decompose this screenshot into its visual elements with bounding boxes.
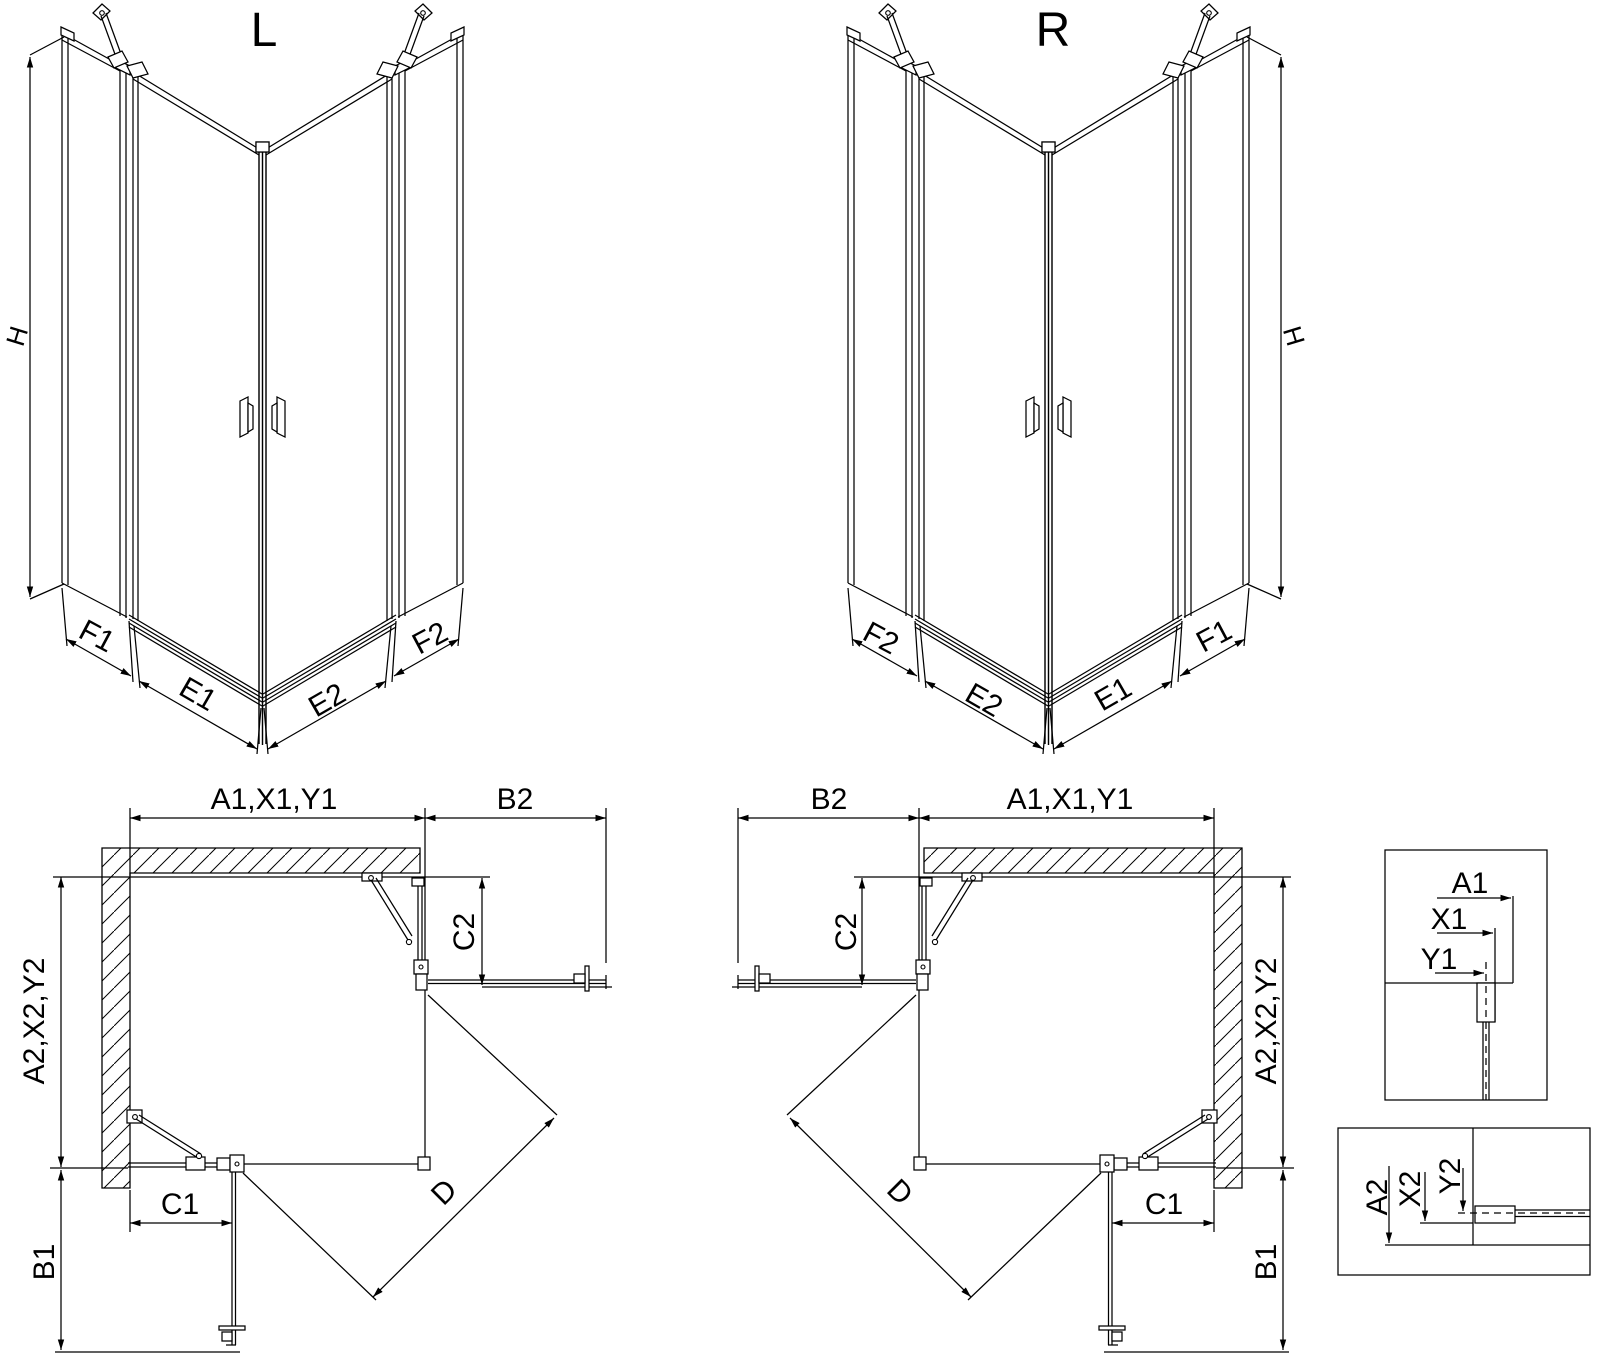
dim-label-a1-detail: A1 bbox=[1452, 867, 1489, 900]
dim-label-d-left-plan: D bbox=[425, 1173, 464, 1212]
iso-view-right: R H F2 E2 E1 F1 bbox=[847, 4, 1311, 754]
dim-label-a2-detail: A2 bbox=[1361, 1179, 1394, 1216]
dim-label-x2-detail: X2 bbox=[1394, 1171, 1427, 1208]
dim-label-c1-right-plan: C1 bbox=[1145, 1188, 1183, 1221]
dim-label-a2x2y2-right-plan: A2,X2,Y2 bbox=[1250, 958, 1283, 1085]
dim-label-c2-right-plan: C2 bbox=[830, 913, 863, 951]
dim-label-d-right-plan: D bbox=[880, 1173, 919, 1212]
dim-label-b1-left-plan: B1 bbox=[28, 1244, 61, 1281]
dim-label-c1-left-plan: C1 bbox=[161, 1188, 199, 1221]
dim-label-y1-detail: Y1 bbox=[1421, 943, 1458, 976]
dim-label-x1-detail: X1 bbox=[1431, 903, 1468, 936]
dim-label-e2-left-iso: E2 bbox=[303, 677, 351, 724]
dim-label-e2-right-iso: E2 bbox=[960, 677, 1008, 724]
dim-label-b2-right-plan: B2 bbox=[811, 783, 848, 816]
wall-hatched-right-plan bbox=[924, 848, 1242, 1188]
dim-label-h-left-iso: H bbox=[0, 323, 34, 350]
technical-drawing-canvas: L H F1 E1 E2 F2 R H F2 E2 E1 F1 A1,X1,Y1… bbox=[0, 0, 1600, 1359]
dim-label-a1x1y1-right-plan: A1,X1,Y1 bbox=[1007, 783, 1134, 816]
dim-label-f2-right-iso: F2 bbox=[858, 616, 904, 662]
shower-enclosure-dimension-sheet: L H F1 E1 E2 F2 R H F2 E2 E1 F1 A1,X1,Y1… bbox=[0, 0, 1600, 1359]
dim-label-b1-right-plan: B1 bbox=[1250, 1244, 1283, 1281]
dim-label-f2-left-iso: F2 bbox=[407, 616, 453, 662]
detail-wall-profile-bottom: A2 X2 Y2 bbox=[1338, 1128, 1590, 1275]
dim-label-f1-right-iso: F1 bbox=[1191, 614, 1237, 660]
view-title-right: R bbox=[1036, 4, 1071, 57]
dim-label-a1x1y1-left-plan: A1,X1,Y1 bbox=[211, 783, 338, 816]
view-title-left: L bbox=[251, 4, 278, 57]
dim-label-f1-left-iso: F1 bbox=[74, 614, 120, 660]
dim-label-a2x2y2-left-plan: A2,X2,Y2 bbox=[18, 958, 51, 1085]
wall-hatched-left-plan bbox=[102, 848, 420, 1188]
detail-wall-profile-top: A1 X1 Y1 bbox=[1385, 850, 1547, 1100]
dim-label-b2-left-plan: B2 bbox=[497, 783, 534, 816]
dim-label-h-right-iso: H bbox=[1277, 323, 1311, 350]
plan-view-right: B2 A1,X1,Y1 C2 A2,X2,Y2 C1 D B1 bbox=[732, 783, 1294, 1352]
plan-view-left: A1,X1,Y1 B2 C2 A2,X2,Y2 C1 D B1 bbox=[18, 783, 612, 1352]
iso-view-left: L H F1 E1 E2 F2 bbox=[0, 4, 464, 754]
dim-label-c2-left-plan: C2 bbox=[448, 913, 481, 951]
dim-label-y2-detail: Y2 bbox=[1434, 1158, 1467, 1195]
